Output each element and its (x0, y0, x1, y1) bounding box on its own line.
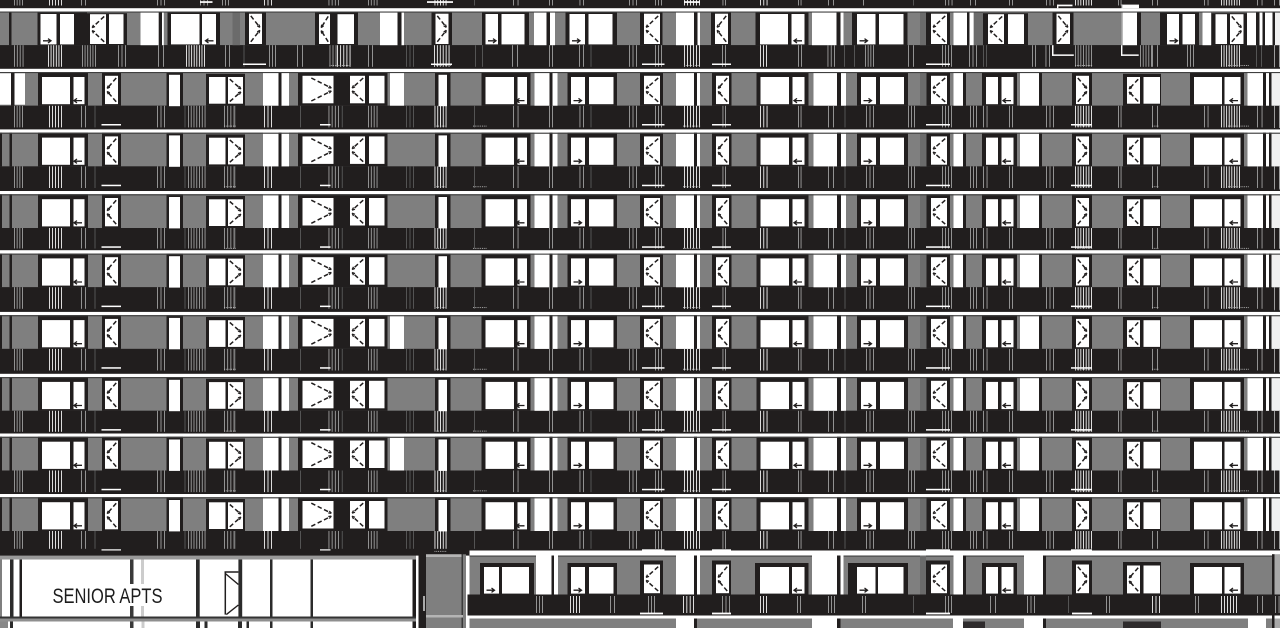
svg-text:SENIOR APTS: SENIOR APTS (53, 585, 163, 608)
